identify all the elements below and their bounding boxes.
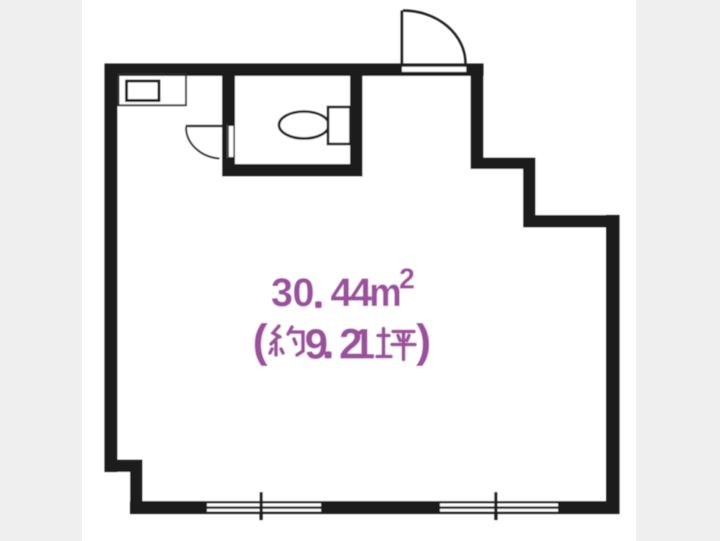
svg-text:): ): [416, 315, 431, 367]
svg-text:(: (: [253, 315, 269, 367]
svg-text:921: 921: [305, 322, 376, 369]
svg-text:2: 2: [399, 264, 415, 296]
svg-text:m: m: [369, 271, 402, 315]
